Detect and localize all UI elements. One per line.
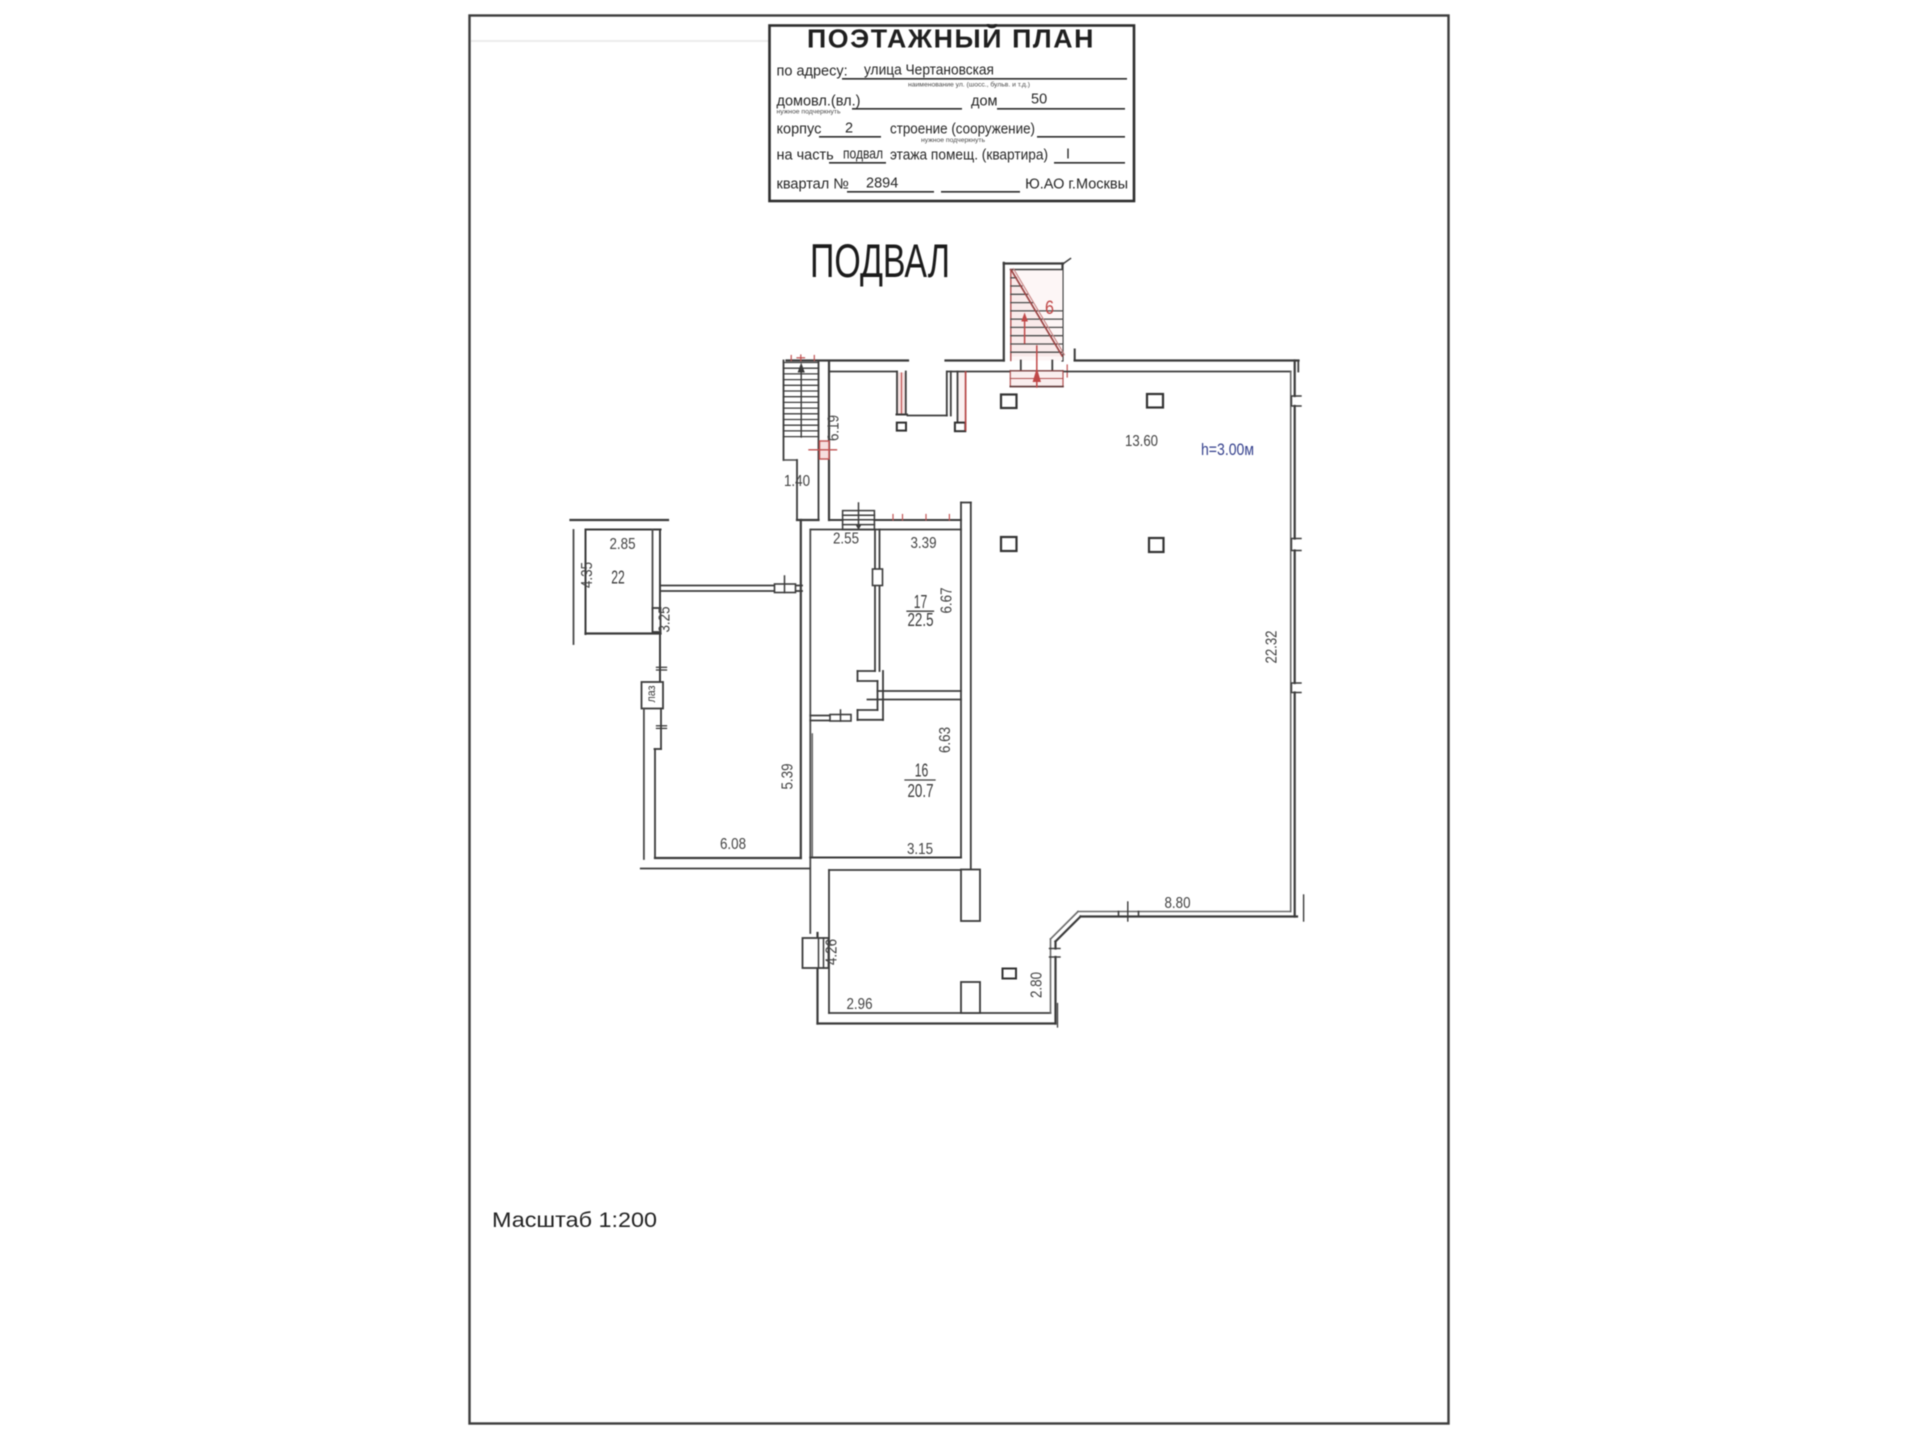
svg-text:3.39: 3.39 <box>911 535 937 552</box>
svg-text:Масштаб 1:200: Масштаб 1:200 <box>492 1208 657 1232</box>
svg-text:2.80: 2.80 <box>1029 972 1046 998</box>
svg-text:2.96: 2.96 <box>847 996 873 1013</box>
svg-text:20.7: 20.7 <box>908 781 934 801</box>
svg-text:22.5: 22.5 <box>908 610 934 630</box>
svg-text:2.55: 2.55 <box>833 531 859 548</box>
svg-text:h=3.00м: h=3.00м <box>1201 440 1254 459</box>
svg-text:13.60: 13.60 <box>1125 433 1158 450</box>
svg-text:2.85: 2.85 <box>610 536 636 553</box>
svg-text:22.32: 22.32 <box>1264 631 1281 664</box>
svg-text:6: 6 <box>1045 298 1054 319</box>
svg-text:лаз: лаз <box>646 686 658 703</box>
svg-text:строение (сооружение): строение (сооружение) <box>890 122 1035 138</box>
svg-text:16: 16 <box>915 761 929 781</box>
svg-text:4.35: 4.35 <box>579 562 596 588</box>
svg-text:6.67: 6.67 <box>939 588 956 614</box>
svg-text:на часть: на часть <box>777 148 834 164</box>
svg-text:по адресу:: по адресу: <box>777 64 848 80</box>
svg-text:8.80: 8.80 <box>1165 895 1191 912</box>
svg-text:3.15: 3.15 <box>907 841 933 858</box>
svg-text:2: 2 <box>845 121 853 137</box>
svg-text:ПОЭТАЖНЫЙ ПЛАН: ПОЭТАЖНЫЙ ПЛАН <box>807 24 1095 54</box>
svg-text:1.40: 1.40 <box>784 473 810 490</box>
svg-text:6.08: 6.08 <box>720 836 746 853</box>
svg-text:наименование ул. (шосс., бульв: наименование ул. (шосс., бульв. и т.д.) <box>908 81 1030 89</box>
svg-text:нужное подчеркнуть: нужное подчеркнуть <box>777 109 841 116</box>
svg-text:этажа помещ. (квартира): этажа помещ. (квартира) <box>890 148 1048 164</box>
svg-text:17: 17 <box>914 592 928 612</box>
svg-text:квартал №: квартал № <box>777 177 849 193</box>
svg-text:подвал: подвал <box>843 147 883 163</box>
svg-text:6.63: 6.63 <box>937 727 954 753</box>
svg-text:дом: дом <box>971 94 998 110</box>
svg-text:улица Чертановская: улица Чертановская <box>864 63 994 79</box>
svg-text:домовл.(вл.): домовл.(вл.) <box>777 94 861 110</box>
svg-text:ПОДВАЛ: ПОДВАЛ <box>810 234 950 287</box>
svg-text:6.19: 6.19 <box>826 415 843 441</box>
svg-text:3.25: 3.25 <box>657 607 674 633</box>
svg-text:корпус: корпус <box>777 122 822 138</box>
svg-text:5.39: 5.39 <box>780 764 797 790</box>
svg-text:нужное подчеркнуть: нужное подчеркнуть <box>921 137 985 144</box>
svg-text:22: 22 <box>611 568 625 588</box>
svg-text:4.26: 4.26 <box>824 939 841 965</box>
svg-text:2894: 2894 <box>866 176 898 192</box>
svg-text:Ю.АО г.Москвы: Ю.АО г.Москвы <box>1025 177 1128 193</box>
svg-text:I: I <box>1066 147 1070 163</box>
svg-text:50: 50 <box>1031 92 1047 108</box>
